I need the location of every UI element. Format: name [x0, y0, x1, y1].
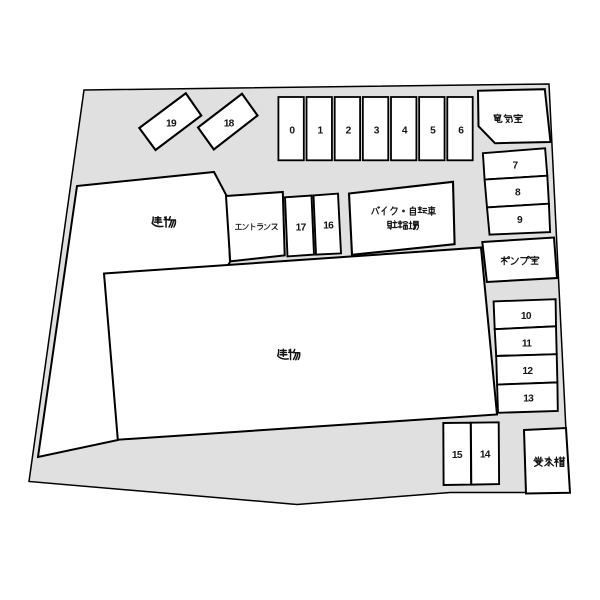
svg-text:11: 11 — [522, 339, 532, 350]
svg-text:18: 18 — [224, 118, 235, 129]
svg-text:10: 10 — [521, 311, 532, 322]
svg-text:19: 19 — [166, 118, 177, 129]
svg-text:12: 12 — [522, 366, 533, 377]
svg-text:16: 16 — [323, 221, 334, 232]
svg-text:15: 15 — [452, 450, 463, 461]
svg-text:13: 13 — [523, 393, 534, 404]
svg-text:14: 14 — [480, 450, 491, 461]
svg-text:17: 17 — [296, 222, 307, 233]
